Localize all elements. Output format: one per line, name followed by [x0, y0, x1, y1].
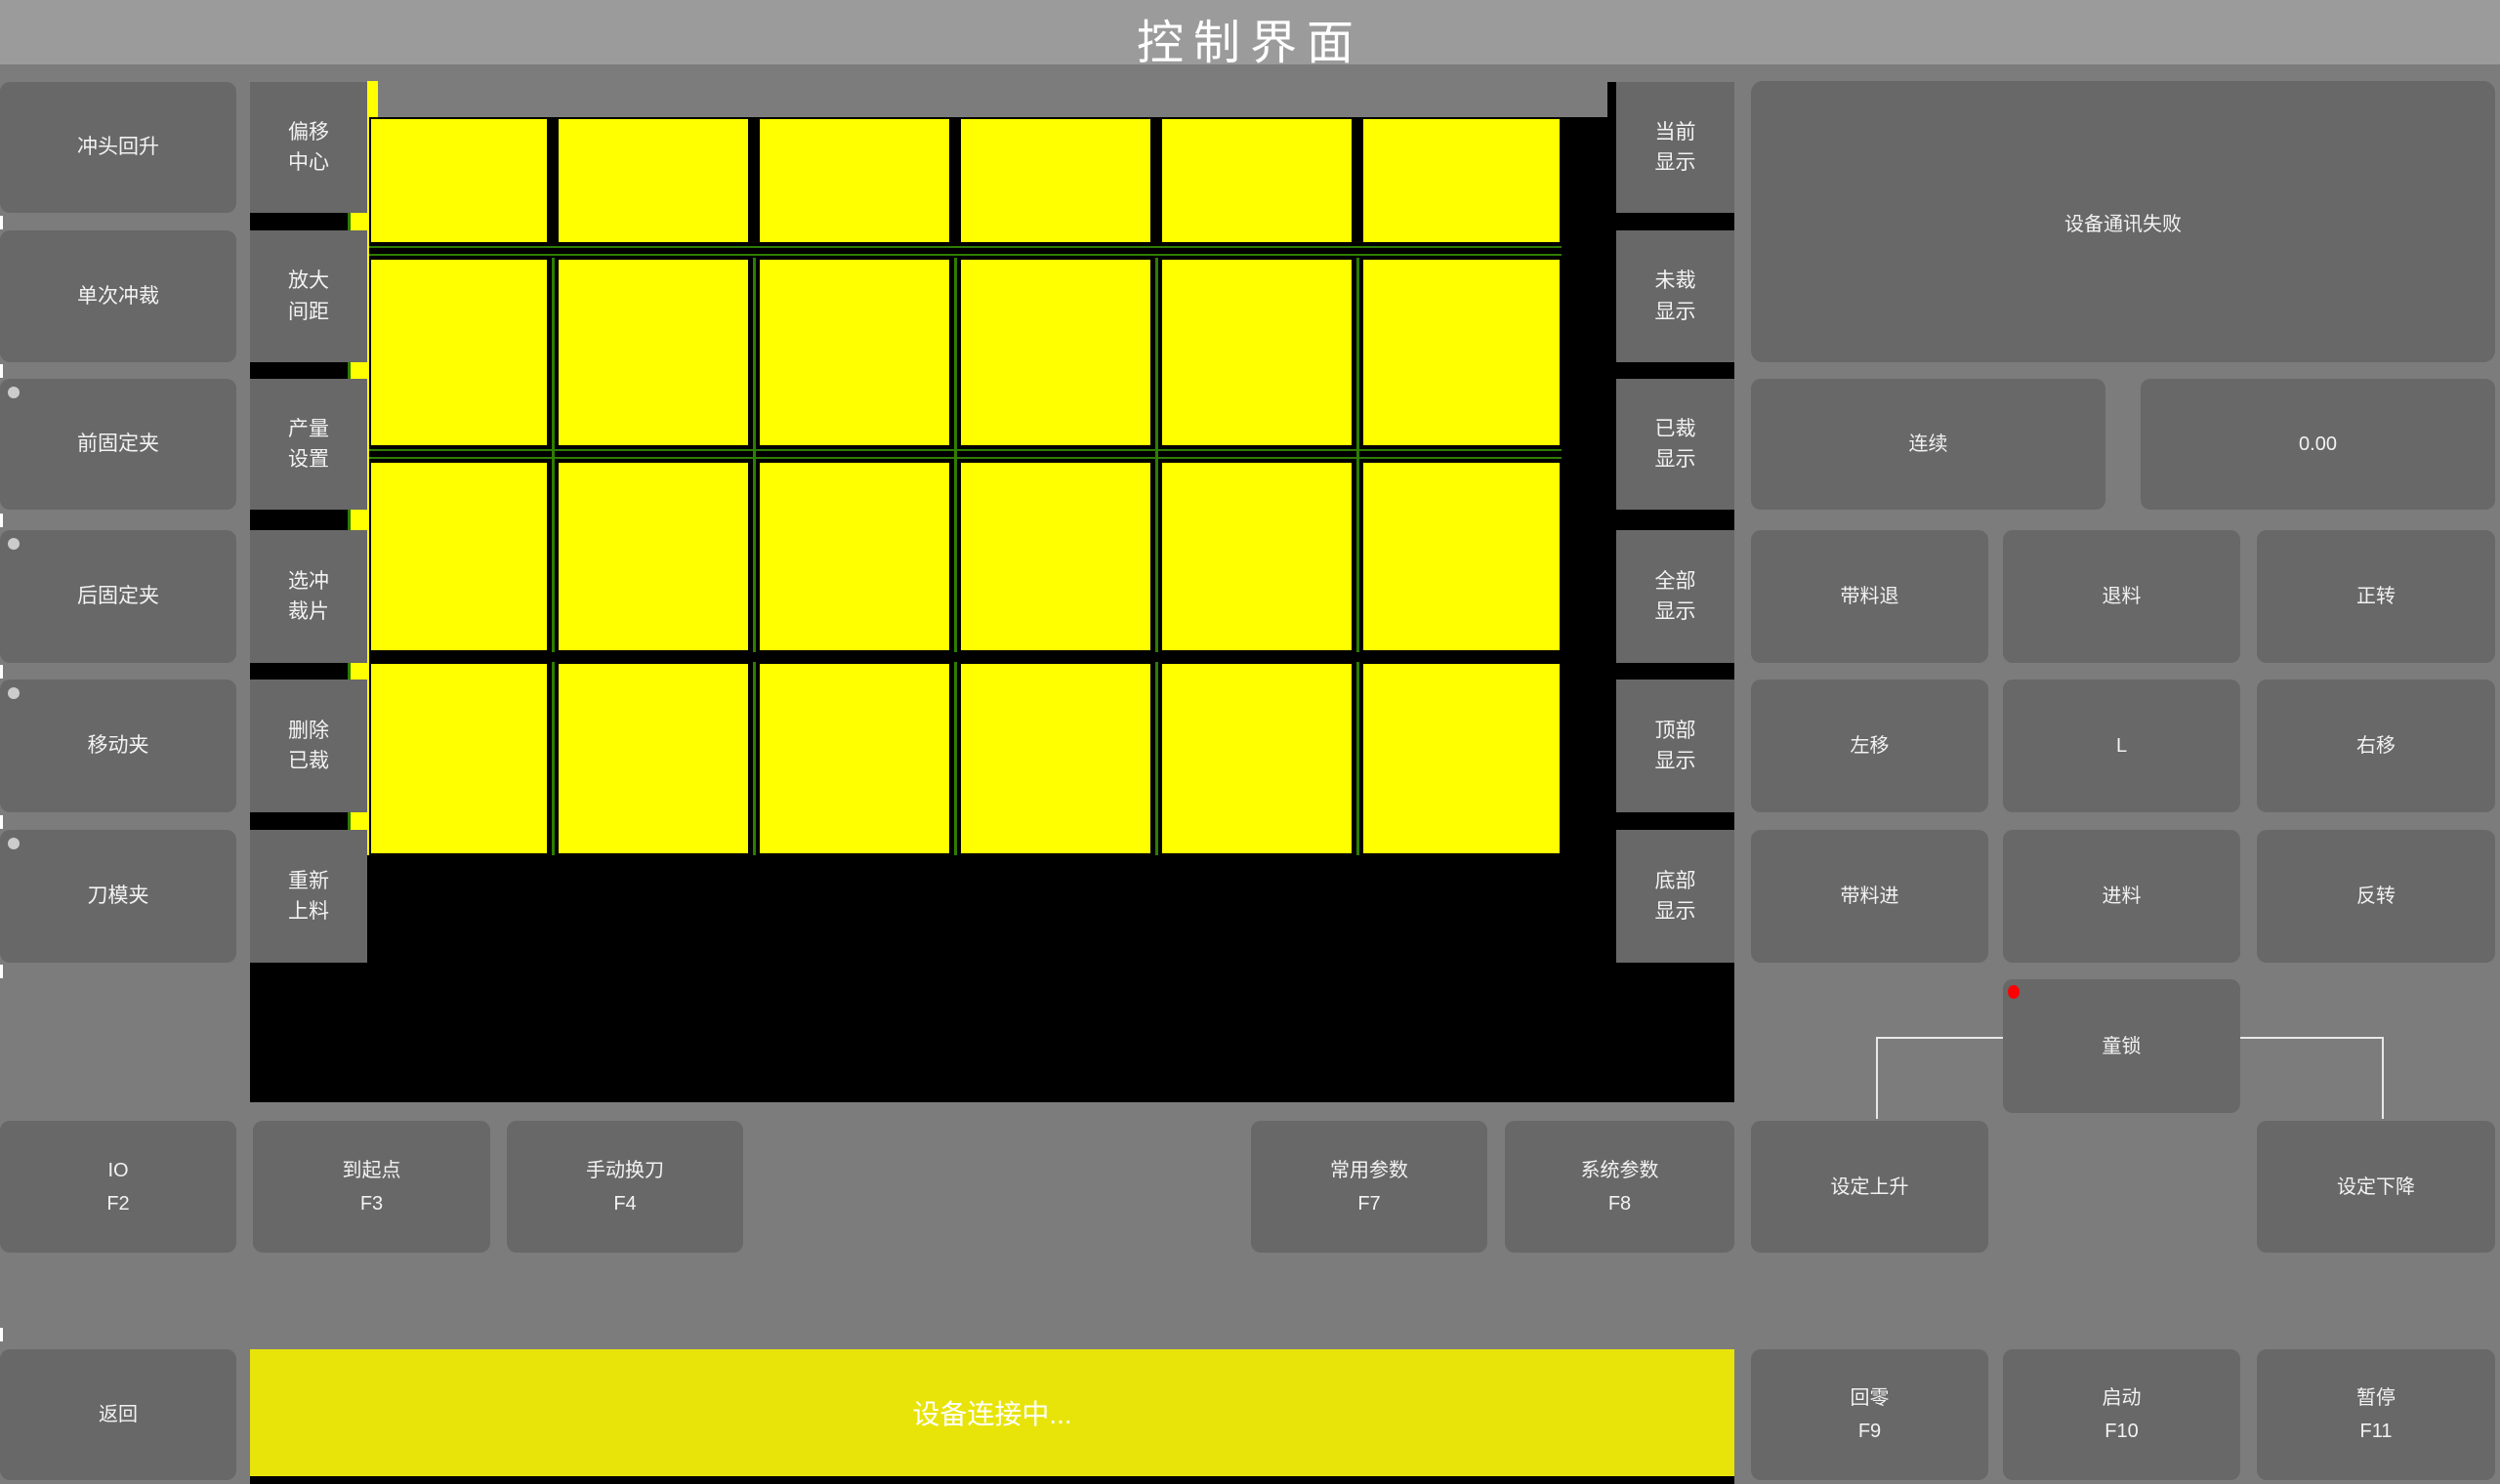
button-label: 启动: [2103, 1381, 2142, 1415]
button-label: 退料: [2103, 582, 2142, 611]
button-key: F10: [2104, 1415, 2138, 1448]
button-label: 单次冲裁: [77, 281, 159, 312]
cutting-canvas: [250, 117, 1734, 1102]
offset-center-button[interactable]: 偏移 中心: [250, 82, 367, 213]
sheet-piece[interactable]: [758, 117, 951, 244]
knife-mold-clamp-button[interactable]: 刀模夹: [0, 830, 236, 963]
button-label: 到起点: [343, 1154, 401, 1187]
button-label: 暂停: [2356, 1381, 2396, 1415]
channel-green-line: [552, 258, 555, 855]
delete-cut-button[interactable]: 删除 已裁: [250, 680, 367, 812]
back-button[interactable]: 返回: [0, 1349, 236, 1480]
channel-green-line: [954, 258, 957, 855]
sheet-piece[interactable]: [959, 117, 1152, 244]
edge-tick: [0, 965, 3, 978]
button-label: 进料: [2103, 882, 2142, 911]
button-label: 冲头回升: [77, 132, 159, 163]
button-label: 删除 已裁: [288, 716, 329, 777]
feed-material-button[interactable]: 进料: [2003, 830, 2240, 963]
all-display-button[interactable]: 全部 显示: [1616, 530, 1734, 663]
channel-green-line: [753, 258, 756, 855]
button-key: F7: [1357, 1187, 1380, 1220]
sheet-piece[interactable]: [557, 662, 750, 855]
common-params-f7-button[interactable]: 常用参数 F7: [1251, 1121, 1487, 1253]
go-origin-f3-button[interactable]: 到起点 F3: [253, 1121, 490, 1253]
move-right-button[interactable]: 右移: [2257, 680, 2495, 812]
move-left-button[interactable]: 左移: [1751, 680, 1988, 812]
sheet-piece[interactable]: [1160, 461, 1354, 652]
status-bar-underline: [250, 1476, 1734, 1484]
button-label: 带料进: [1841, 882, 1899, 911]
button-label: 后固定夹: [77, 581, 159, 612]
button-label: 前固定夹: [77, 429, 159, 460]
sheet-piece[interactable]: [557, 117, 750, 244]
clamp-indicator-dot: [8, 838, 20, 849]
sheet-piece[interactable]: [959, 461, 1152, 652]
title-bar: 控制界面: [0, 0, 2500, 64]
channel-green-line: [369, 449, 1562, 451]
pause-f11-button[interactable]: 暂停 F11: [2257, 1349, 2495, 1480]
tape-forward-button[interactable]: 带料进: [1751, 830, 1988, 963]
sheet-piece[interactable]: [369, 258, 549, 447]
reload-material-button[interactable]: 重新 上料: [250, 830, 367, 963]
sheet-piece[interactable]: [369, 461, 549, 652]
rear-clamp-button[interactable]: 后固定夹: [0, 530, 236, 663]
tape-back-button[interactable]: 带料退: [1751, 530, 1988, 663]
button-label: 刀模夹: [88, 881, 149, 912]
uncut-display-button[interactable]: 未裁 显示: [1616, 230, 1734, 362]
set-fall-button[interactable]: 设定下降: [2257, 1121, 2495, 1253]
current-display-button[interactable]: 当前 显示: [1616, 82, 1734, 213]
button-label: 产量 设置: [288, 414, 329, 475]
button-label: 回零: [1851, 1381, 1890, 1415]
edge-tick: [0, 216, 3, 229]
button-label: 童锁: [2103, 1032, 2142, 1061]
sheet-piece[interactable]: [758, 461, 951, 652]
button-label: 放大 间距: [288, 266, 329, 327]
continuous-button[interactable]: 连续: [1751, 379, 2105, 510]
home-f9-button[interactable]: 回零 F9: [1751, 1349, 1988, 1480]
thick-divider-line: [369, 652, 1562, 662]
button-label: 右移: [2356, 731, 2396, 761]
yield-setting-button[interactable]: 产量 设置: [250, 379, 367, 510]
connection-status-bar: 设备连接中...: [250, 1349, 1734, 1476]
button-label: 设定下降: [2337, 1171, 2415, 1204]
sheet-piece[interactable]: [758, 258, 951, 447]
button-label: IO: [107, 1154, 128, 1187]
select-punch-piece-button[interactable]: 选冲 裁片: [250, 530, 367, 663]
edge-tick: [0, 514, 3, 527]
clamp-indicator-dot: [8, 538, 20, 550]
comm-status-panel: 设备通讯失败: [1751, 81, 2495, 362]
edge-tick: [0, 364, 3, 378]
single-punch-button[interactable]: 单次冲裁: [0, 230, 236, 362]
button-key: F3: [360, 1187, 383, 1220]
button-label: 选冲 裁片: [288, 566, 329, 628]
channel-green-line: [1356, 258, 1359, 855]
button-label: 底部 显示: [1655, 866, 1696, 927]
button-label: 返回: [99, 1400, 138, 1429]
value-display[interactable]: 0.00: [2141, 379, 2495, 510]
set-rise-button[interactable]: 设定上升: [1751, 1121, 1988, 1253]
child-lock-button[interactable]: 童锁: [2003, 979, 2240, 1113]
button-label: 反转: [2356, 882, 2396, 911]
channel-green-line: [369, 246, 1562, 248]
value-text: 0.00: [2299, 430, 2337, 459]
button-key: F11: [2360, 1415, 2393, 1448]
button-label: L: [2116, 731, 2127, 761]
child-lock-bracket-right: [2382, 1037, 2384, 1119]
edge-tick: [0, 665, 3, 679]
button-label: 当前 显示: [1655, 117, 1696, 179]
forward-rotate-button[interactable]: 正转: [2257, 530, 2495, 663]
sheet-piece[interactable]: [1361, 461, 1562, 652]
enlarge-spacing-button[interactable]: 放大 间距: [250, 230, 367, 362]
return-material-button[interactable]: 退料: [2003, 530, 2240, 663]
button-label: 全部 显示: [1655, 566, 1696, 628]
channel-green-line: [1155, 258, 1158, 855]
sheet-piece[interactable]: [1361, 258, 1562, 447]
cut-display-button[interactable]: 已裁 显示: [1616, 379, 1734, 510]
sheet-piece[interactable]: [369, 117, 549, 244]
button-label: 未裁 显示: [1655, 266, 1696, 327]
button-label: 偏移 中心: [288, 117, 329, 179]
manual-toolchange-f4-button[interactable]: 手动换刀 F4: [507, 1121, 743, 1253]
bottom-display-button[interactable]: 底部 显示: [1616, 830, 1734, 963]
front-clamp-button[interactable]: 前固定夹: [0, 379, 236, 510]
edge-tick: [0, 1328, 3, 1341]
button-label: 设定上升: [1831, 1171, 1909, 1204]
reverse-rotate-button[interactable]: 反转: [2257, 830, 2495, 963]
alarm-dot-icon: [2008, 985, 2020, 999]
comm-status-message: 设备通讯失败: [2064, 208, 2182, 236]
l-button[interactable]: L: [2003, 680, 2240, 812]
button-key: F8: [1608, 1187, 1631, 1220]
io-f2-button[interactable]: IO F2: [0, 1121, 236, 1253]
start-f10-button[interactable]: 启动 F10: [2003, 1349, 2240, 1480]
sheet-piece[interactable]: [1160, 662, 1354, 855]
button-label: 左移: [1851, 731, 1890, 761]
channel-green-line: [369, 254, 1562, 256]
edge-tick: [0, 815, 3, 829]
button-label: 带料退: [1841, 582, 1899, 611]
sheet-piece[interactable]: [959, 258, 1152, 447]
clamp-indicator-dot: [8, 687, 20, 699]
sheet-piece[interactable]: [959, 662, 1152, 855]
button-key: F2: [106, 1187, 129, 1220]
button-label: 连续: [1909, 430, 1948, 459]
button-label: 系统参数: [1581, 1154, 1659, 1187]
sheet-piece[interactable]: [1361, 662, 1562, 855]
top-display-button[interactable]: 顶部 显示: [1616, 680, 1734, 812]
connection-status-text: 设备连接中...: [912, 1393, 1071, 1432]
canvas-top-tab: [367, 81, 378, 117]
button-label: 正转: [2356, 582, 2396, 611]
sheet-piece[interactable]: [1361, 117, 1562, 244]
channel-green-line: [369, 457, 1562, 459]
sheet-piece[interactable]: [557, 258, 750, 447]
punch-raise-button[interactable]: 冲头回升: [0, 82, 236, 213]
button-label: 常用参数: [1330, 1154, 1408, 1187]
button-key: F9: [1858, 1415, 1881, 1448]
button-label: 手动换刀: [586, 1154, 664, 1187]
page-title: 控制界面: [0, 4, 2500, 72]
button-key: F4: [613, 1187, 636, 1220]
move-clamp-button[interactable]: 移动夹: [0, 680, 236, 812]
button-label: 重新 上料: [288, 866, 329, 927]
button-label: 顶部 显示: [1655, 716, 1696, 777]
clamp-indicator-dot: [8, 387, 20, 398]
sheet-piece[interactable]: [369, 662, 549, 855]
sheet-piece[interactable]: [1160, 117, 1354, 244]
sheet-piece[interactable]: [758, 662, 951, 855]
system-params-f8-button[interactable]: 系统参数 F8: [1505, 1121, 1734, 1253]
sheet-piece[interactable]: [1160, 258, 1354, 447]
button-label: 移动夹: [88, 730, 149, 762]
button-label: 已裁 显示: [1655, 414, 1696, 475]
sheet-piece[interactable]: [557, 461, 750, 652]
control-screen: 控制界面 冲头回升 单次冲裁 前固定夹 后固定夹 移动夹 刀模夹 偏移 中心 放…: [0, 0, 2500, 1484]
child-lock-bracket-left: [1876, 1037, 1878, 1119]
